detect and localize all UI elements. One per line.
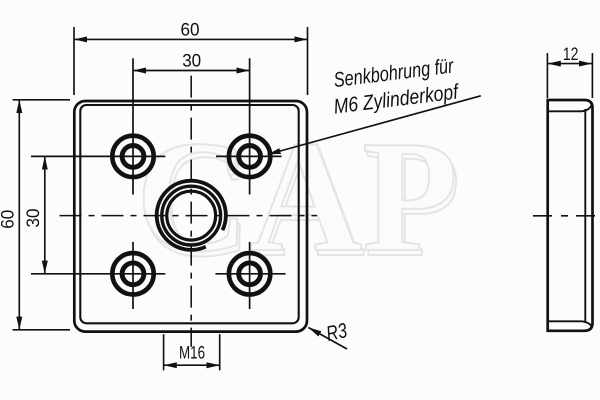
svg-text:30: 30 bbox=[182, 51, 201, 71]
svg-text:30: 30 bbox=[23, 209, 43, 228]
svg-text:R3: R3 bbox=[324, 319, 349, 346]
svg-text:60: 60 bbox=[181, 20, 200, 40]
svg-text:M16: M16 bbox=[179, 342, 205, 362]
svg-text:CAP: CAP bbox=[136, 107, 458, 285]
svg-text:12: 12 bbox=[563, 44, 579, 64]
svg-text:60: 60 bbox=[0, 210, 17, 229]
